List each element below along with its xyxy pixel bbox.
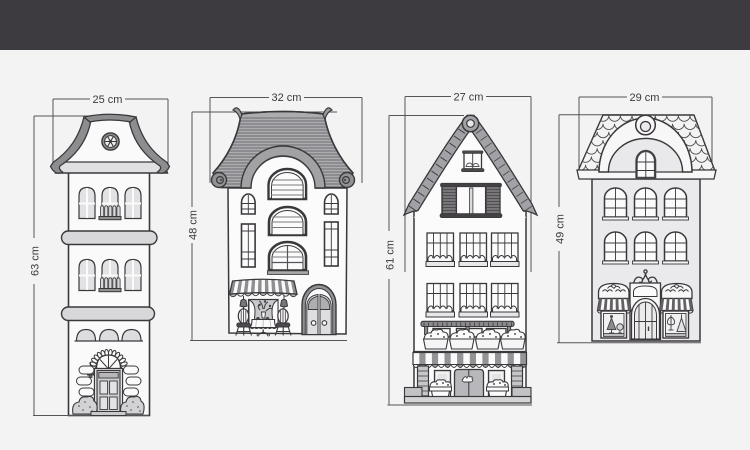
svg-text:25 cm: 25 cm: [93, 94, 123, 106]
svg-text:63 cm: 63 cm: [30, 246, 42, 276]
svg-text:27 cm: 27 cm: [454, 91, 484, 103]
svg-text:61 cm: 61 cm: [385, 240, 397, 270]
svg-text:49 cm: 49 cm: [555, 214, 567, 244]
svg-text:29 cm: 29 cm: [630, 92, 660, 104]
svg-text:48 cm: 48 cm: [188, 210, 200, 240]
svg-text:32 cm: 32 cm: [272, 92, 302, 104]
